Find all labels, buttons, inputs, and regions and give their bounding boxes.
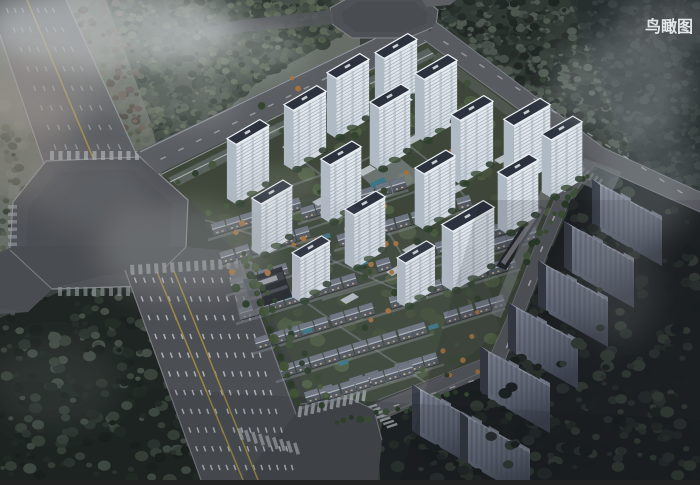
svg-text:鸟瞰图: 鸟瞰图 <box>645 17 693 36</box>
